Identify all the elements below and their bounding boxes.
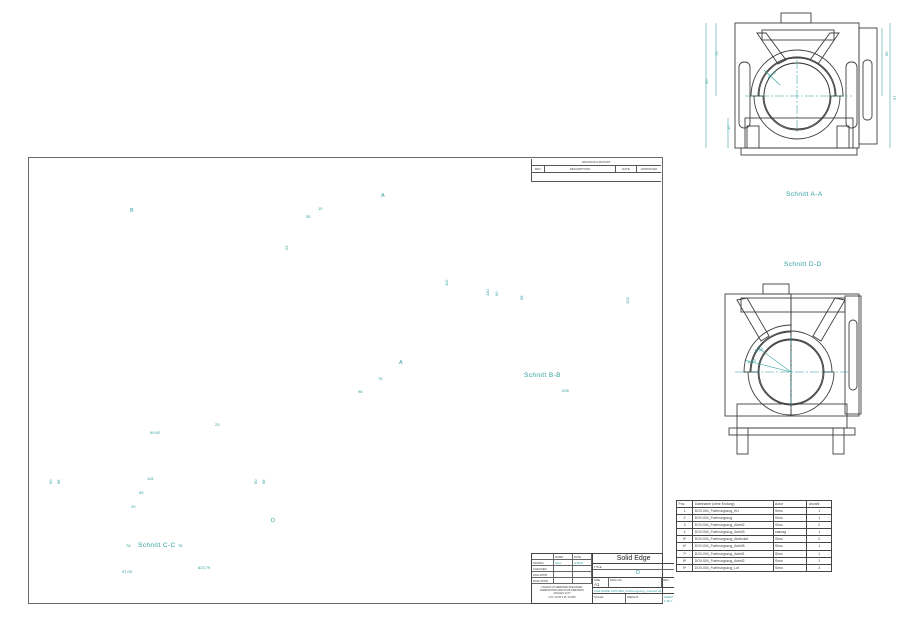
col-autor: Autor bbox=[773, 501, 807, 508]
parts-list-cell: 8* bbox=[677, 557, 693, 564]
revision-table-title: REVISION HISTORY bbox=[532, 159, 661, 166]
parts-list-cell: 2 bbox=[807, 522, 832, 529]
parts-list-cell: 7* bbox=[677, 550, 693, 557]
dim-label: 98 bbox=[261, 480, 266, 484]
weight-label: WEIGHT: bbox=[626, 594, 663, 603]
product-logo-text: Solid Edge bbox=[593, 554, 674, 564]
sheet-border bbox=[28, 157, 663, 604]
dim-label: 10 bbox=[318, 206, 322, 211]
label-schnitt-b-b: Schnitt B-B bbox=[524, 372, 561, 379]
dim-label: 78 bbox=[126, 543, 130, 548]
marker-a-bottom: A bbox=[399, 360, 403, 366]
parts-list-cell: Simo bbox=[773, 536, 807, 543]
label-schnitt-c-c: Schnitt C-C bbox=[138, 542, 176, 549]
parts-list-cell: 9* bbox=[677, 564, 693, 571]
dim-label: 97.09 bbox=[122, 569, 132, 574]
dim-label: 623.79 bbox=[198, 565, 210, 570]
parts-list-header: Pos. Dateiname (ohne Endung) Autor Anzah… bbox=[677, 501, 832, 508]
view-schnitt-dd bbox=[725, 284, 861, 454]
revision-col-description: DESCRIPTION bbox=[545, 166, 616, 172]
parts-list-cell: 3 bbox=[677, 522, 693, 529]
sheet-label: SHEET 1 OF 1 bbox=[663, 594, 674, 603]
dim-label: 20 bbox=[131, 504, 135, 509]
dim-label: 97 bbox=[892, 96, 897, 100]
parts-list-cell: DOV-004_Fuehrungszug_Anteil2 bbox=[693, 557, 773, 564]
dim-label: 140 bbox=[485, 289, 490, 296]
dim-label: 115 bbox=[147, 476, 153, 481]
parts-list-cell: Simo bbox=[773, 543, 807, 550]
col-pos: Pos. bbox=[677, 501, 693, 508]
parts-list-cell: DOV-004_Fuehrungszug_Anteil5 bbox=[693, 543, 773, 550]
parts-list-row: 9*DOV-004_Fuehrungszug_LufSimo4 bbox=[677, 564, 832, 571]
parts-list-cell: 1 bbox=[807, 543, 832, 550]
parts-list-cell: 1 bbox=[807, 508, 832, 515]
title-block-signoff: NAME DATE DRAWN Simo 4/18/21 CHECKED ENG… bbox=[532, 554, 592, 584]
dim-label: 35 bbox=[306, 214, 310, 219]
col-anzahl: Anzahl bbox=[807, 501, 832, 508]
sheet-size: A1 bbox=[594, 582, 607, 587]
revision-col-date: DATE bbox=[616, 166, 637, 172]
parts-list-cell: 1 bbox=[807, 557, 832, 564]
dim-label: 76 bbox=[378, 376, 382, 381]
parts-list-row: 3DOV-004_Fuehrungszug_Anteil2Simo2 bbox=[677, 522, 832, 529]
parts-list-cell: DOV-004_Fuehrungszug bbox=[693, 515, 773, 522]
dim-label: 15 bbox=[726, 126, 731, 130]
dim-label: 90 bbox=[494, 292, 499, 296]
revision-empty-row bbox=[532, 173, 661, 181]
dim-label: 206 bbox=[562, 388, 569, 393]
dim-label: 23 bbox=[215, 422, 219, 427]
dim-label: 90 bbox=[884, 52, 889, 56]
title-value bbox=[593, 570, 674, 578]
parts-list-row: 8*DOV-004_Fuehrungszug_Anteil2Simo1 bbox=[677, 557, 832, 564]
dim-label: 90 bbox=[253, 480, 258, 484]
dim-label: 88 bbox=[56, 480, 61, 484]
parts-list-cell: Simo bbox=[773, 557, 807, 564]
parts-list-cell: DOV-004_Fuehrungszug_Anteil3 bbox=[693, 529, 773, 536]
revision-table: REVISION HISTORY REV DESCRIPTION DATE AP… bbox=[531, 159, 661, 182]
parts-list-cell: 1 bbox=[807, 515, 832, 522]
parts-list-cell: 6* bbox=[677, 543, 693, 550]
parts-list-cell: 4 bbox=[677, 529, 693, 536]
parts-list-body: 1DOV-004_Fuehrungszug_KUSimo12DOV-004_Fu… bbox=[677, 508, 832, 572]
parts-list-row: 2DOV-004_FuehrungszugSimo1 bbox=[677, 515, 832, 522]
parts-list-cell: Simo bbox=[773, 550, 807, 557]
col-dateiname: Dateiname (ohne Endung) bbox=[693, 501, 773, 508]
title-block: NAME DATE DRAWN Simo 4/18/21 CHECKED ENG… bbox=[531, 553, 663, 604]
parts-list-cell: DOV-004_Fuehrungszug_Anteil2 bbox=[693, 522, 773, 529]
marker-b: B bbox=[130, 208, 134, 214]
dim-label: 25 bbox=[284, 246, 289, 250]
revision-col-rev: REV bbox=[532, 166, 545, 172]
parts-list-row: 7*DOV-004_Fuehrungszug_Anteil1Simo1 bbox=[677, 550, 832, 557]
parts-list-cell: 1 bbox=[807, 529, 832, 536]
label-schnitt-d-d: Schnitt D-D bbox=[784, 261, 822, 268]
parts-list-cell: csanag bbox=[773, 529, 807, 536]
dim-label: 110 bbox=[444, 280, 449, 286]
scale-label: SCALE: bbox=[593, 594, 626, 603]
parts-list-cell: DOV-004_Fuehrungszug_Anteil1 bbox=[693, 550, 773, 557]
parts-list: Pos. Dateiname (ohne Endung) Autor Anzah… bbox=[676, 500, 832, 572]
dwg-no-label: DWG NO bbox=[609, 578, 662, 587]
parts-list-cell: DOV-004_Fuehrungszug_Abdeckel bbox=[693, 536, 773, 543]
marker-a-top: A bbox=[381, 193, 385, 199]
parts-list-row: 6*DOV-004_Fuehrungszug_Anteil5Simo1 bbox=[677, 543, 832, 550]
parts-list-row: 1DOV-004_Fuehrungszug_KUSimo1 bbox=[677, 508, 832, 515]
view-schnitt-aa bbox=[706, 13, 890, 155]
dim-label: 103 bbox=[625, 297, 630, 304]
dim-label: 58 bbox=[519, 296, 524, 300]
parts-list-cell: Simo bbox=[773, 508, 807, 515]
parts-list-cell: 1 bbox=[677, 508, 693, 515]
parts-list-cell: Simo bbox=[773, 515, 807, 522]
marker-d-right: D bbox=[636, 570, 640, 576]
parts-list-cell: 4 bbox=[807, 564, 832, 571]
dim-label: 60 bbox=[48, 480, 53, 484]
parts-list-cell: 2 bbox=[677, 515, 693, 522]
label-schnitt-a-a: Schnitt A-A bbox=[786, 191, 823, 198]
dim-label: 75 bbox=[714, 52, 719, 56]
parts-list-cell: 5* bbox=[677, 536, 693, 543]
size-box: SIZE A1 bbox=[593, 578, 609, 587]
dim-label: 78 bbox=[178, 543, 182, 548]
parts-list-row: 4DOV-004_Fuehrungszug_Anteil3csanag1 bbox=[677, 529, 832, 536]
dim-label: 99.92 bbox=[150, 430, 160, 435]
tolerance-note: UNLESS OTHERWISE SPECIFIED: DIMENSIONS A… bbox=[532, 584, 592, 603]
revision-col-approved: APPROVED bbox=[637, 166, 661, 172]
dim-label: 96 bbox=[358, 389, 362, 394]
parts-list-cell: DOV-004_Fuehrungszug_KU bbox=[693, 508, 773, 515]
rev-label: REV bbox=[662, 578, 674, 587]
dim-label: 90 bbox=[704, 80, 709, 84]
parts-list-cell: 1 bbox=[807, 550, 832, 557]
parts-list-cell: Simo bbox=[773, 522, 807, 529]
parts-list-row: 5*DOV-004_Fuehrungszug_AbdeckelSimo2 bbox=[677, 536, 832, 543]
parts-list-cell: Simo bbox=[773, 564, 807, 571]
parts-list-cell: DOV-004_Fuehrungszug_Luf bbox=[693, 564, 773, 571]
marker-d-left: D bbox=[271, 518, 275, 524]
dim-label: 65 bbox=[139, 490, 143, 495]
parts-list-cell: 2 bbox=[807, 536, 832, 543]
